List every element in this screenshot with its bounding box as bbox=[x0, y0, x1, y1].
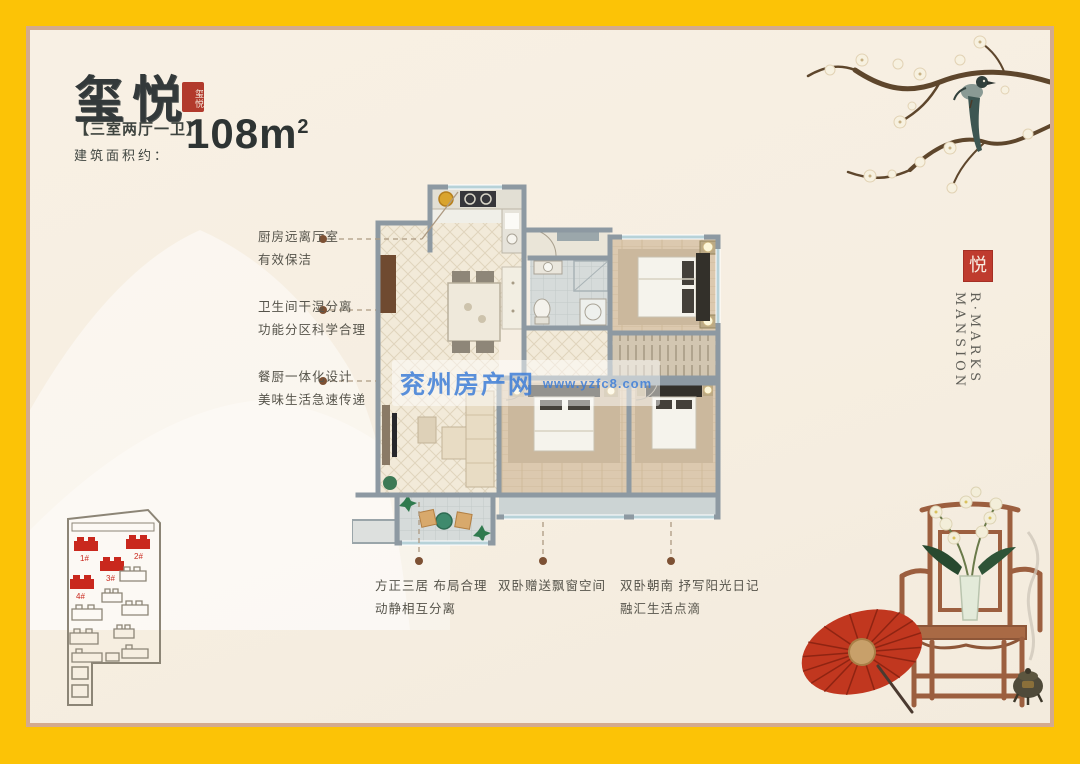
building-label-3: 3# bbox=[106, 574, 115, 583]
callout-line: 卫生间干湿分离 bbox=[258, 296, 433, 319]
building-label-4: 4# bbox=[76, 592, 85, 601]
callout-bathroom: 卫生间干湿分离 功能分区科学合理 bbox=[258, 296, 433, 341]
callout-line: 功能分区科学合理 bbox=[258, 319, 433, 342]
callout-line: 融汇生活点滴 bbox=[620, 598, 759, 621]
callout-line: 有效保洁 bbox=[258, 249, 433, 272]
unit-layout-spec: 【三室两厅一卫】 bbox=[74, 118, 202, 139]
callout-line: 厨房远离厅室 bbox=[258, 226, 433, 249]
decor-still-life-art bbox=[790, 480, 1052, 723]
area-number: 108m bbox=[186, 110, 297, 157]
callout-line: 美味生活急速传递 bbox=[258, 389, 433, 412]
poster-root: { "frame": { "border_color": "#fcc306", … bbox=[0, 0, 1080, 764]
callout-line: 餐厨一体化设计 bbox=[258, 366, 433, 389]
callout-line: 双卧朝南 抒写阳光日记 bbox=[620, 575, 759, 598]
title-seal-stamp: 玺悦 bbox=[182, 82, 204, 112]
building-label-1: 1# bbox=[80, 554, 89, 563]
brand-seal-stamp: 悦 bbox=[963, 250, 993, 282]
callout-dining-kitchen: 餐厨一体化设计 美味生活急速传递 bbox=[258, 366, 433, 411]
callout-south-bedrooms: 双卧朝南 抒写阳光日记 融汇生活点滴 bbox=[620, 575, 759, 620]
callout-kitchen: 厨房远离厅室 有效保洁 bbox=[258, 226, 433, 271]
plum-blossom-bird-art bbox=[800, 30, 1050, 200]
watermark-site-url: www.yzfc8.com bbox=[543, 376, 652, 391]
callout-layout: 方正三居 布局合理 动静相互分离 bbox=[375, 575, 487, 620]
site-plan-map: 1# 2# 3# 4# bbox=[58, 505, 190, 720]
brand-name-vertical: R·MARKS MANSION bbox=[952, 292, 982, 432]
building-label-2: 2# bbox=[134, 552, 143, 561]
area-value: 108m2 bbox=[186, 110, 310, 158]
callout-bay-window: 双卧赠送飘窗空间 bbox=[498, 575, 606, 598]
callout-line: 动静相互分离 bbox=[375, 598, 487, 621]
area-superscript: 2 bbox=[297, 116, 309, 138]
callout-line: 方正三居 布局合理 bbox=[375, 575, 487, 598]
callout-line: 双卧赠送飘窗空间 bbox=[498, 575, 606, 598]
unit-spec-block: 【三室两厅一卫】 建筑面积约： bbox=[74, 118, 202, 164]
brand-line2: MANSION bbox=[952, 292, 967, 432]
brand-line1: R·MARKS bbox=[967, 292, 982, 432]
area-label: 建筑面积约： bbox=[74, 145, 202, 164]
bay-window-right bbox=[629, 495, 718, 517]
ac-platform bbox=[352, 520, 397, 543]
bay-window-left bbox=[499, 495, 629, 517]
poster-panel: 玺悦 玺悦 【三室两厅一卫】 建筑面积约： 108m2 bbox=[26, 26, 1054, 727]
